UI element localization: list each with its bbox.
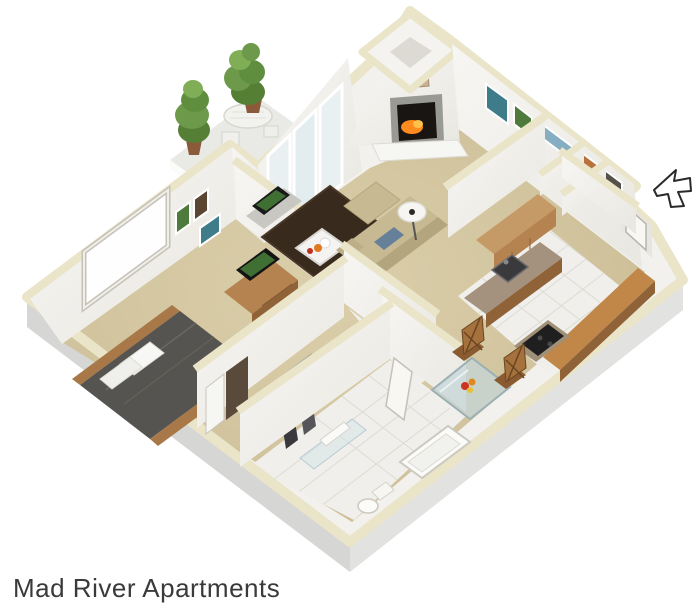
toilet xyxy=(358,499,378,513)
entry-arrow-icon xyxy=(654,170,691,207)
faucet xyxy=(504,260,509,265)
image-caption: Mad River Apartments xyxy=(13,573,280,604)
patio-chair xyxy=(264,126,278,137)
sliding-glass-door xyxy=(320,85,342,200)
floor-plan-render xyxy=(0,0,700,615)
floor-plan-image: Mad River Apartments xyxy=(0,0,700,615)
